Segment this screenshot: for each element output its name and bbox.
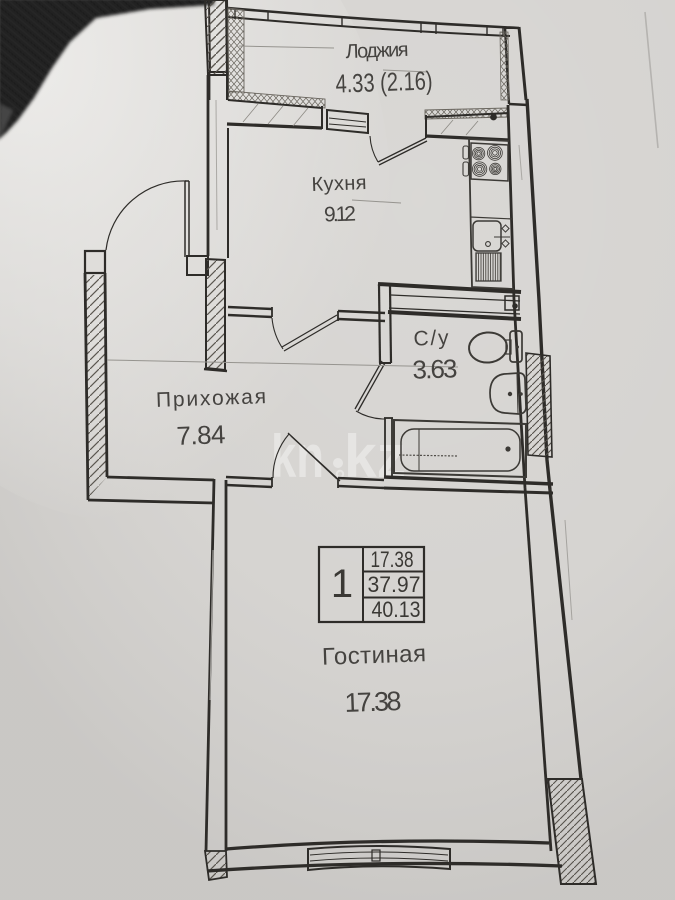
svg-text:7.84: 7.84 <box>176 419 226 451</box>
svg-text:kn: kn <box>271 423 324 490</box>
svg-text:40.13: 40.13 <box>372 597 421 622</box>
svg-text:17.38: 17.38 <box>371 547 414 572</box>
svg-text:Гостиная: Гостиная <box>322 640 427 671</box>
svg-text:1: 1 <box>331 562 353 606</box>
svg-text:4.33 (2.16): 4.33 (2.16) <box>335 65 433 98</box>
svg-text:17.38: 17.38 <box>344 686 402 718</box>
svg-text:37.97: 37.97 <box>368 572 421 597</box>
svg-text:9.12: 9.12 <box>324 202 357 226</box>
svg-text:С/у: С/у <box>413 326 449 350</box>
svg-text:3.63: 3.63 <box>412 353 458 385</box>
svg-text:Кухня: Кухня <box>311 172 367 196</box>
svg-text:Лоджия: Лоджия <box>345 39 409 63</box>
